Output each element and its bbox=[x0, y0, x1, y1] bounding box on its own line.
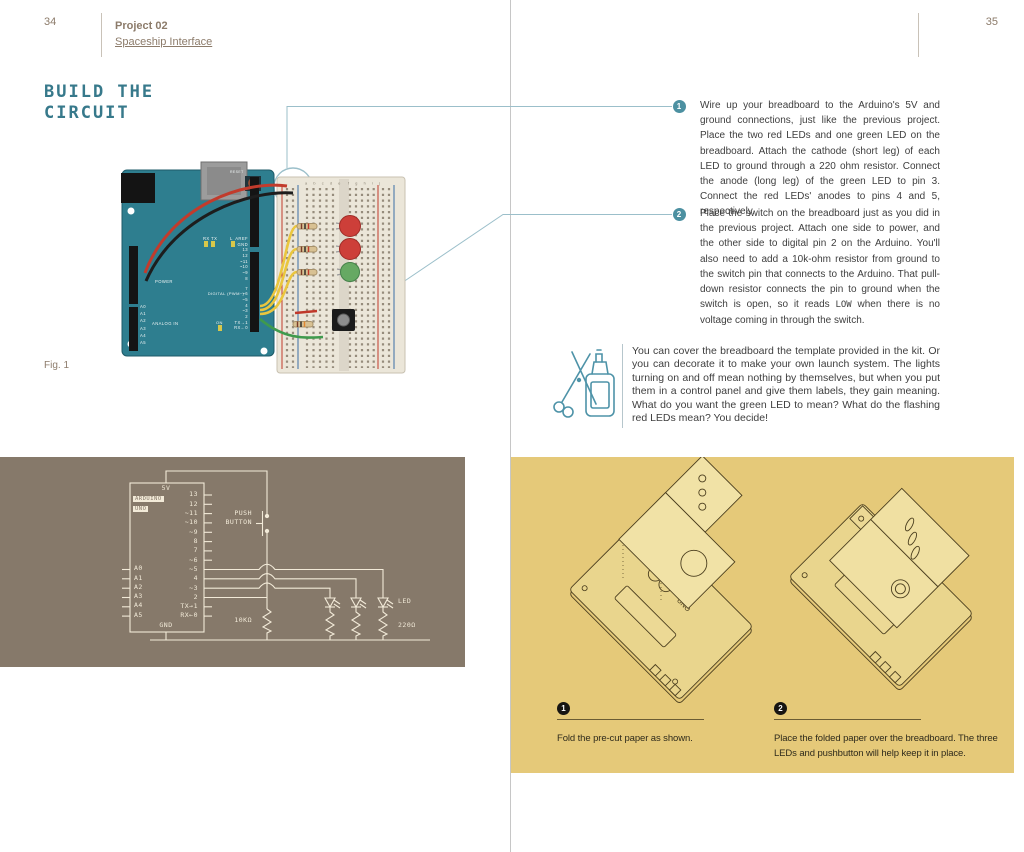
step2-text: Place the switch on the breadboard just … bbox=[700, 206, 940, 329]
tip-divider bbox=[622, 344, 623, 428]
schematic-gnd-label: GND bbox=[150, 621, 182, 629]
breadboard-letters-right: f g h i j bbox=[348, 182, 383, 186]
fig1-power-label: POWER bbox=[155, 279, 173, 284]
step1-badge: 1 bbox=[673, 100, 686, 113]
schematic-220-label: 220Ω bbox=[398, 621, 416, 629]
step2-low-keyword: LOW bbox=[835, 300, 851, 310]
panel-step2-badge: 2 bbox=[774, 702, 787, 715]
dc-jack bbox=[121, 173, 155, 203]
step1-text: Wire up your breadboard to the Arduino's… bbox=[700, 98, 940, 220]
step2-text-before: Place the switch on the breadboard just … bbox=[700, 208, 940, 310]
analog-header-strip bbox=[129, 307, 138, 351]
step2-badge: 2 bbox=[673, 208, 686, 221]
tip-text: You can cover the breadboard the templat… bbox=[632, 345, 940, 425]
fig1-analog-label: ANALOG IN bbox=[152, 321, 178, 326]
fig1-pin-column: AREFGND1312~11~10~987~6~54~32TX→1RX←0 bbox=[214, 236, 248, 331]
step2-number: 2 bbox=[677, 210, 681, 219]
paper-art-step2: UNO bbox=[787, 488, 975, 691]
paper-art-step1: UNO bbox=[567, 457, 772, 704]
panel-step2-number: 2 bbox=[778, 704, 782, 713]
step1-number: 1 bbox=[677, 102, 681, 111]
panel-step1-number: 1 bbox=[561, 704, 565, 713]
red-led-2 bbox=[340, 239, 361, 260]
schematic-10k-label: 10KΩ bbox=[200, 616, 252, 624]
schematic-art bbox=[0, 457, 465, 667]
schematic-button-label: BUTTON bbox=[200, 518, 252, 526]
fig1-label: Fig. 1 bbox=[44, 360, 69, 371]
red-led-1 bbox=[340, 216, 361, 237]
fig1-illustration: a b c d e f g h i j bbox=[115, 160, 415, 380]
scissors-glue-icon bbox=[552, 342, 618, 422]
fig1-reset-label: RESET bbox=[230, 170, 244, 174]
paper-template-art: UNO bbox=[511, 457, 1014, 773]
fig1-analog-pins: A0A1A2A3A4A5 bbox=[140, 303, 146, 346]
schematic-analog-pins: A0A1A2A3A4A5 bbox=[134, 564, 164, 620]
schematic-led-label: LED bbox=[398, 597, 411, 605]
power-header-strip bbox=[129, 246, 138, 304]
fig2-schematic-panel: 5V GND ARDUINO UNO PUSH BUTTON 10KΩ LED … bbox=[0, 457, 465, 667]
panel-step2-caption: Place the folded paper over the breadboa… bbox=[774, 731, 1012, 761]
panel-step1-badge: 1 bbox=[557, 702, 570, 715]
book-spread: 34 Project 02 Spaceship Interface 35 BUI… bbox=[0, 0, 1024, 852]
pushbutton bbox=[332, 309, 355, 331]
paper-template-panel: UNO bbox=[511, 457, 1014, 773]
breadboard-letters-left: a b c d e bbox=[305, 182, 343, 186]
panel-step2-rule bbox=[774, 719, 921, 720]
green-led bbox=[341, 263, 360, 282]
schematic-leds bbox=[325, 598, 393, 640]
schematic-push-label: PUSH bbox=[200, 509, 252, 517]
panel-step1-rule bbox=[557, 719, 704, 720]
panel-step1-caption: Fold the pre-cut paper as shown. bbox=[557, 731, 757, 746]
fig1-art: a b c d e f g h i j bbox=[115, 160, 415, 380]
